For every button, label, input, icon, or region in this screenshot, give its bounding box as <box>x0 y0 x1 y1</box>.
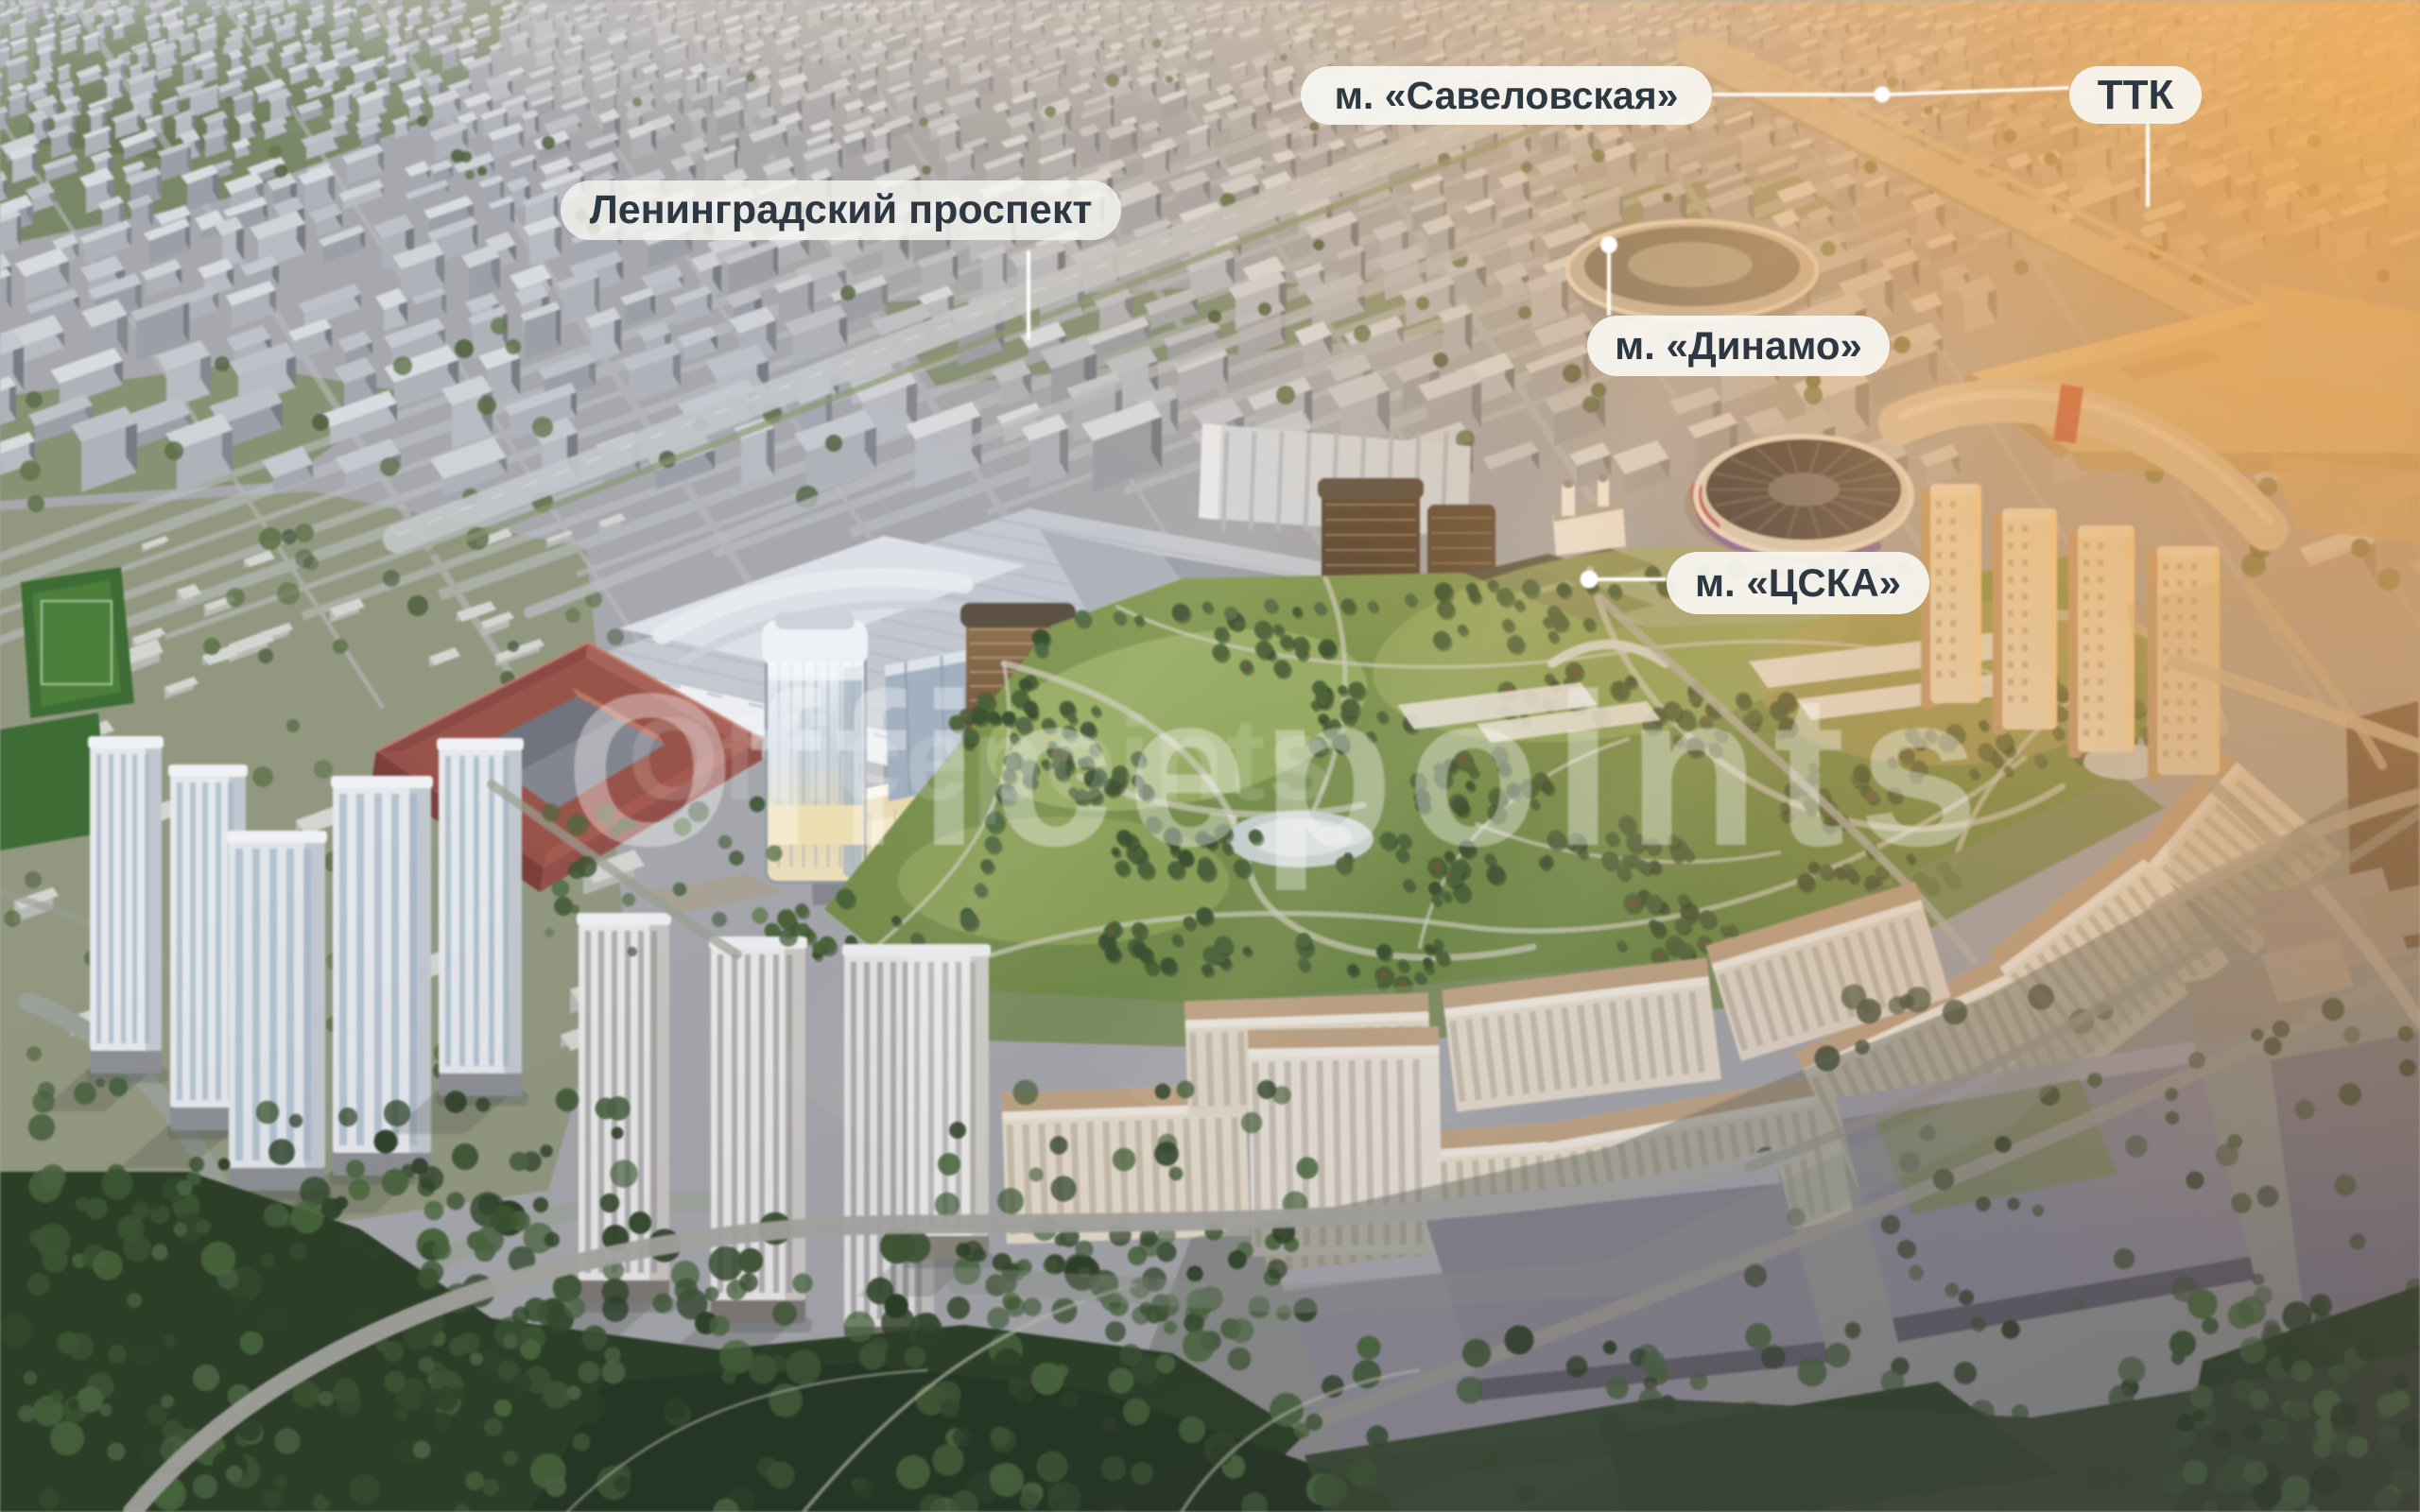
svg-text:Officepoints: Officepoints <box>628 695 1334 825</box>
